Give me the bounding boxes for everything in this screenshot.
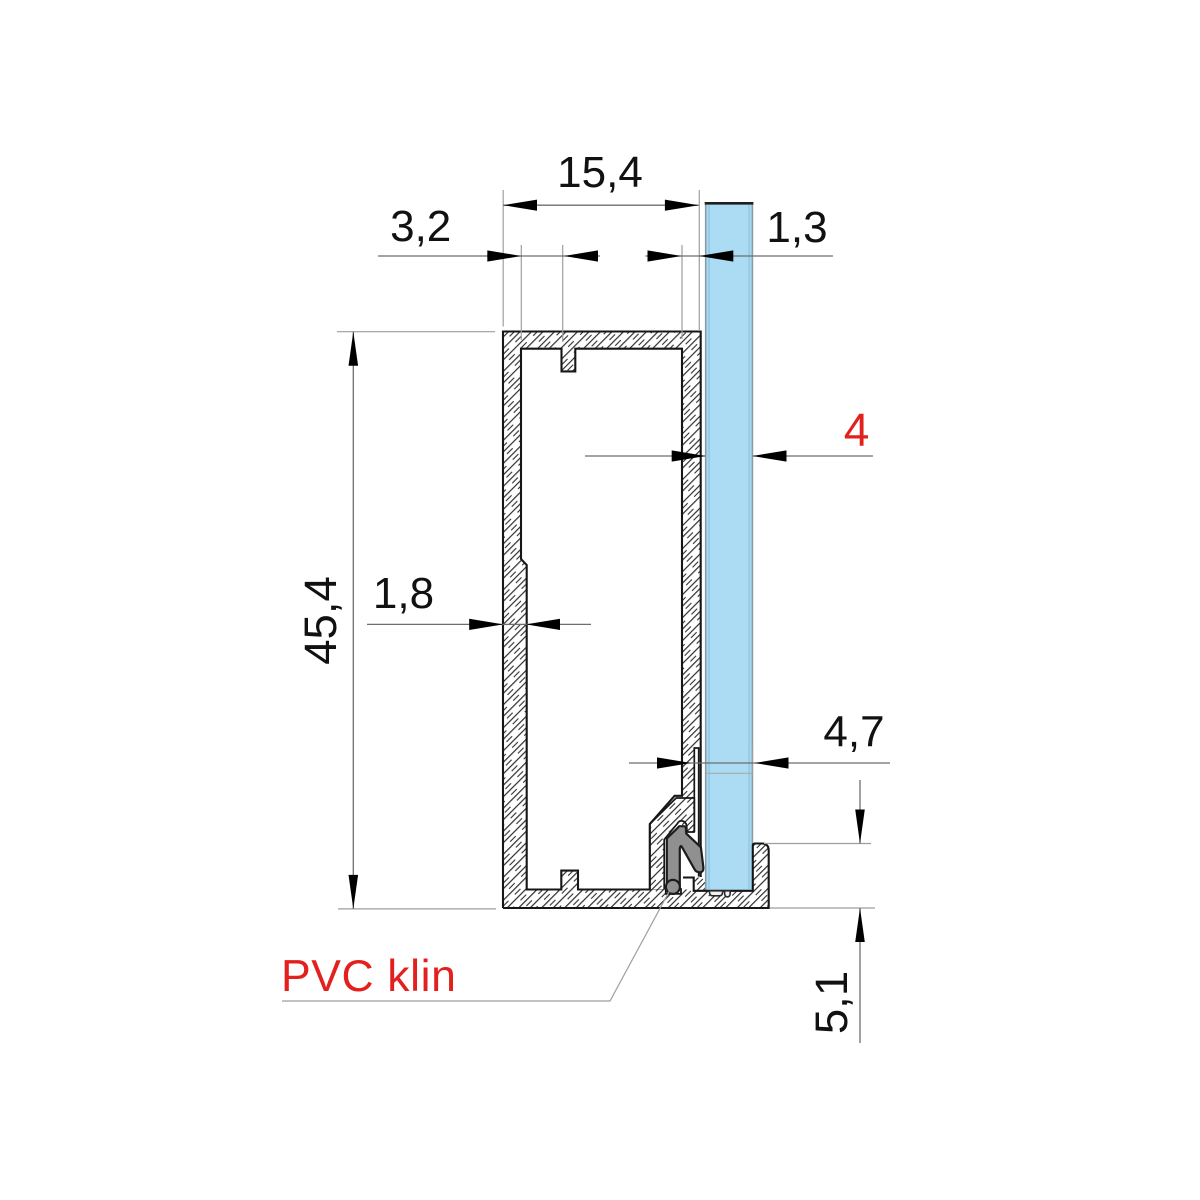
svg-text:4: 4 bbox=[844, 404, 870, 456]
svg-text:45,4: 45,4 bbox=[295, 576, 346, 665]
svg-text:3,2: 3,2 bbox=[390, 202, 451, 251]
svg-text:1,3: 1,3 bbox=[766, 203, 827, 252]
svg-text:1,8: 1,8 bbox=[373, 569, 434, 618]
svg-text:4,7: 4,7 bbox=[823, 708, 884, 757]
svg-text:15,4: 15,4 bbox=[557, 148, 643, 197]
svg-text:PVC klin: PVC klin bbox=[281, 952, 456, 1001]
svg-text:5,1: 5,1 bbox=[806, 971, 857, 1034]
